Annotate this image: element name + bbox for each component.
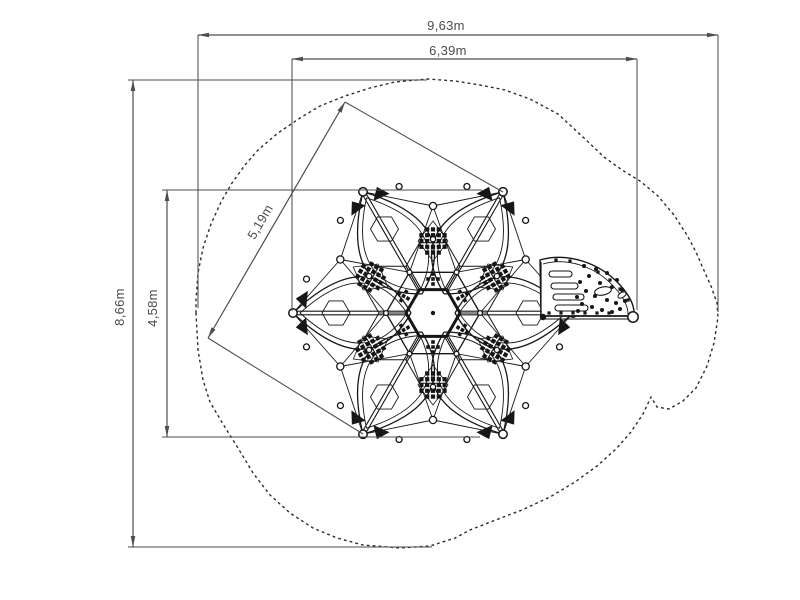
technical-drawing-svg: 9,63m 6,39m 8,66m 4,58m 5,19m: [0, 0, 800, 600]
inner-width-dimension-label: 6,39m: [429, 43, 467, 58]
ramp-corner-post: [628, 312, 638, 322]
hub-center-dot: [431, 311, 435, 315]
drawing-canvas: 9,63m 6,39m 8,66m 4,58m 5,19m: [0, 0, 800, 600]
overall-width-dimension-label: 9,63m: [427, 18, 465, 33]
ramp-platform: [540, 257, 638, 322]
structure-diagonal-dimension-label: 5,19m: [244, 202, 276, 242]
climbing-structure-top-view: [289, 184, 577, 443]
dimension-labels: 9,63m 6,39m 8,66m 4,58m 5,19m: [112, 18, 467, 327]
structure-depth-dimension-label: 4,58m: [145, 289, 160, 327]
safety-zone-outline: [196, 79, 718, 548]
overall-depth-dimension-label: 8,66m: [112, 288, 127, 326]
fall-zone-dashed-path: [196, 79, 718, 548]
